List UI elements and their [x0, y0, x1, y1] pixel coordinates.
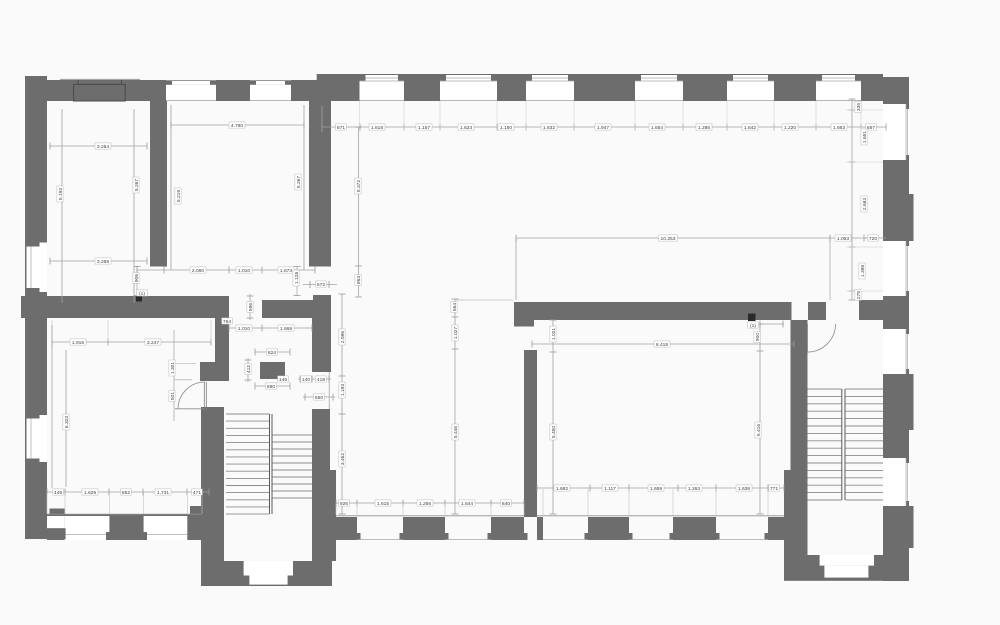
svg-text:1.916: 1.916 [72, 340, 85, 346]
svg-text:5.267: 5.267 [134, 179, 140, 192]
svg-text:550: 550 [315, 395, 323, 401]
svg-text:906: 906 [134, 274, 140, 282]
svg-text:8.418: 8.418 [656, 342, 669, 348]
svg-text:720: 720 [869, 236, 877, 242]
svg-text:2.060: 2.060 [192, 268, 205, 274]
svg-text:1.947: 1.947 [597, 125, 610, 131]
svg-text:5.372: 5.372 [356, 180, 362, 193]
svg-text:564: 564 [452, 303, 458, 311]
svg-text:412: 412 [246, 365, 252, 373]
svg-text:1.010: 1.010 [238, 268, 251, 274]
svg-text:10.253: 10.253 [661, 236, 676, 242]
svg-text:1.615: 1.615 [377, 501, 390, 507]
svg-text:667: 667 [867, 125, 875, 131]
svg-text:1.150: 1.150 [500, 125, 513, 131]
svg-text:418: 418 [317, 377, 325, 383]
svg-text:501: 501 [170, 392, 176, 400]
svg-text:1.286: 1.286 [698, 125, 711, 131]
svg-text:(1): (1) [750, 323, 756, 329]
svg-text:275: 275 [856, 291, 862, 299]
svg-text:3.269: 3.269 [97, 259, 110, 265]
svg-text:1.663: 1.663 [833, 125, 846, 131]
svg-text:771: 771 [770, 486, 778, 492]
svg-text:2.683: 2.683 [862, 198, 868, 211]
svg-text:1.659: 1.659 [650, 486, 663, 492]
svg-text:1.263: 1.263 [688, 486, 701, 492]
svg-text:1.128: 1.128 [294, 272, 300, 285]
svg-text:1.623: 1.623 [460, 125, 473, 131]
svg-text:764: 764 [223, 319, 231, 325]
svg-text:5.450: 5.450 [551, 426, 557, 439]
svg-text:1.632: 1.632 [543, 125, 556, 131]
svg-text:1.063: 1.063 [837, 236, 850, 242]
svg-text:1.117: 1.117 [604, 486, 616, 492]
svg-text:1.256: 1.256 [419, 501, 432, 507]
svg-text:1.644: 1.644 [461, 501, 474, 507]
svg-text:1.651: 1.651 [862, 131, 868, 144]
svg-text:871: 871 [337, 125, 345, 131]
svg-text:5.193: 5.193 [58, 188, 64, 201]
svg-text:449: 449 [54, 490, 62, 496]
svg-text:1.157: 1.157 [418, 125, 431, 131]
svg-text:5.267: 5.267 [296, 176, 302, 189]
svg-text:1.654: 1.654 [651, 125, 664, 131]
svg-text:1.618: 1.618 [371, 125, 384, 131]
svg-text:3.254: 3.254 [97, 144, 110, 150]
svg-text:900: 900 [755, 333, 761, 341]
svg-text:1.669: 1.669 [280, 326, 293, 332]
svg-text:824: 824 [268, 350, 276, 356]
svg-text:1.021: 1.021 [551, 328, 557, 341]
svg-text:1.301: 1.301 [170, 362, 176, 375]
svg-text:1.398: 1.398 [860, 265, 866, 278]
svg-text:(1): (1) [139, 291, 145, 297]
svg-text:3.247: 3.247 [147, 340, 160, 346]
svg-text:596: 596 [248, 303, 254, 311]
svg-text:1.629: 1.629 [84, 490, 97, 496]
svg-text:145: 145 [279, 377, 287, 383]
svg-text:335: 335 [856, 103, 862, 111]
svg-text:471: 471 [193, 490, 201, 496]
svg-text:140: 140 [302, 377, 310, 383]
svg-text:5.219: 5.219 [176, 190, 182, 203]
svg-text:926: 926 [340, 501, 348, 507]
svg-text:3.462: 3.462 [340, 453, 346, 466]
svg-text:1.642: 1.642 [744, 125, 757, 131]
svg-text:5.446: 5.446 [453, 426, 459, 439]
svg-text:690: 690 [267, 384, 275, 390]
svg-text:4.780: 4.780 [231, 123, 244, 129]
svg-text:1.193: 1.193 [340, 384, 346, 397]
svg-text:5.416: 5.416 [756, 424, 762, 437]
svg-text:1.731: 1.731 [157, 490, 170, 496]
svg-text:1.636: 1.636 [738, 486, 751, 492]
svg-text:1.220: 1.220 [784, 125, 797, 131]
svg-text:572: 572 [317, 282, 325, 288]
svg-text:1.682: 1.682 [556, 486, 569, 492]
svg-text:1.673: 1.673 [280, 268, 293, 274]
svg-text:840: 840 [502, 501, 510, 507]
svg-text:1.010: 1.010 [238, 326, 251, 332]
svg-text:2.596: 2.596 [340, 331, 346, 344]
svg-text:953: 953 [356, 276, 362, 284]
svg-text:1.027: 1.027 [453, 327, 459, 340]
svg-text:852: 852 [122, 490, 130, 496]
svg-text:6.323: 6.323 [64, 416, 70, 429]
